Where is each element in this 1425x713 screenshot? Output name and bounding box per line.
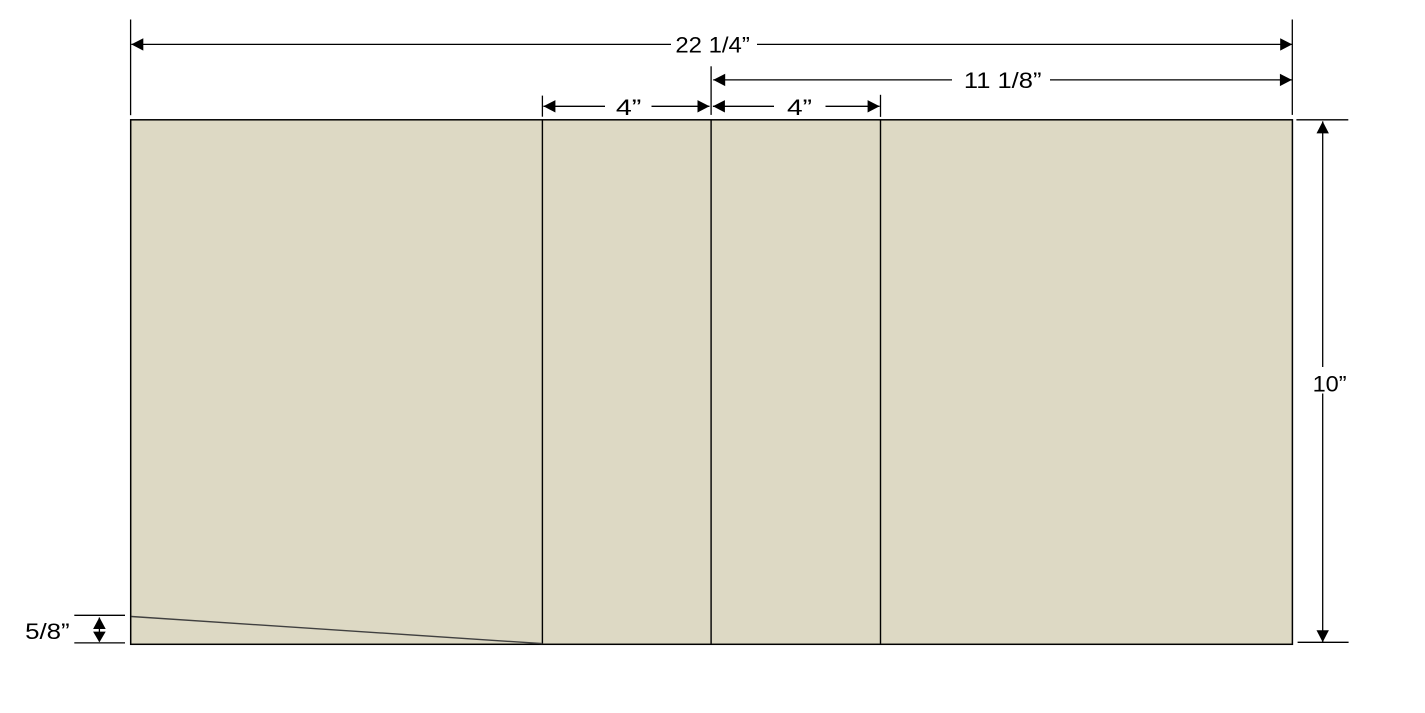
- svg-text:5/8”: 5/8”: [25, 619, 70, 644]
- svg-text:11 1/8”: 11 1/8”: [964, 68, 1042, 93]
- svg-text:4”: 4”: [787, 95, 812, 120]
- svg-text:10”: 10”: [1313, 372, 1347, 397]
- svg-text:4”: 4”: [616, 95, 642, 120]
- svg-text:22 1/4”: 22 1/4”: [675, 32, 750, 57]
